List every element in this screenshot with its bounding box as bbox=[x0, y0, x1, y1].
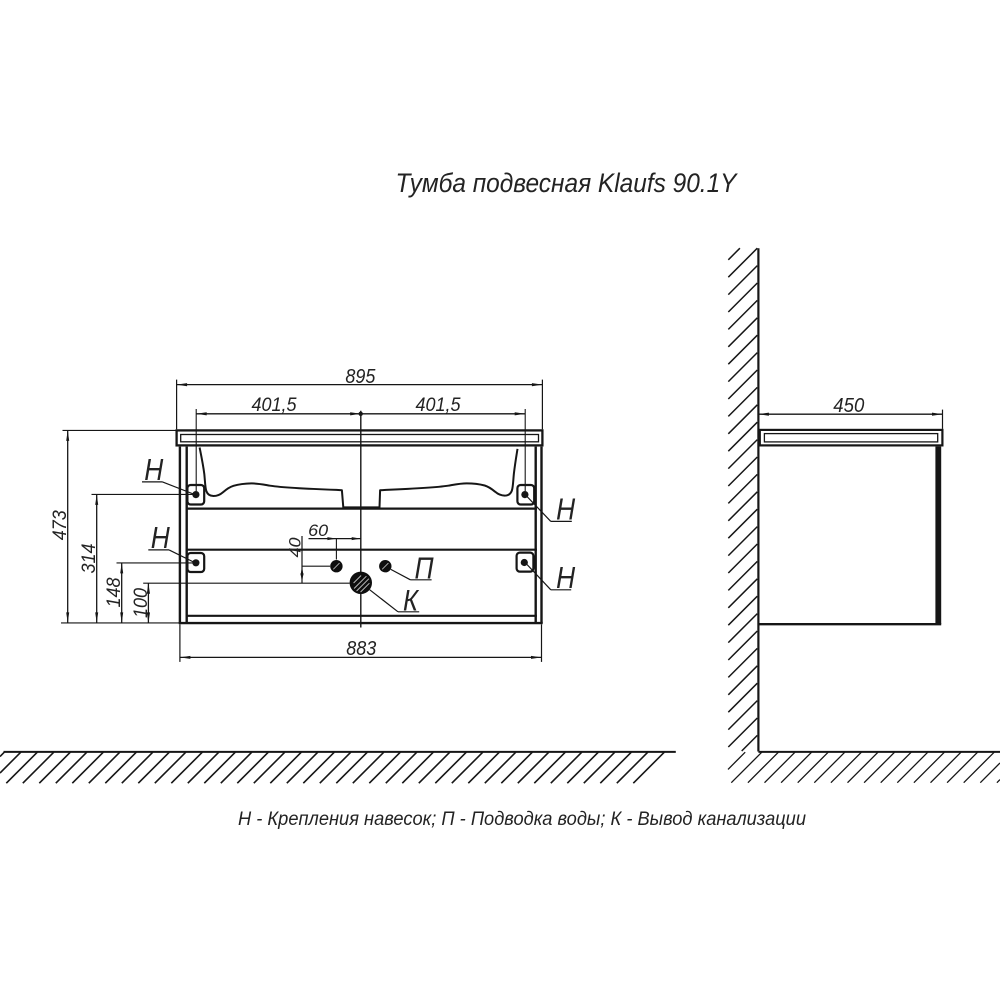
svg-text:100: 100 bbox=[131, 588, 152, 618]
svg-text:П: П bbox=[414, 552, 433, 586]
svg-text:Тумба подвесная Klaufs 90.1Y: Тумба подвесная Klaufs 90.1Y bbox=[396, 168, 739, 198]
svg-text:Н - Крепления навесок; П - Под: Н - Крепления навесок; П - Подводка воды… bbox=[238, 809, 806, 830]
svg-text:40: 40 bbox=[285, 537, 304, 558]
svg-text:60: 60 bbox=[308, 521, 329, 540]
svg-text:450: 450 bbox=[833, 395, 864, 417]
svg-text:401,5: 401,5 bbox=[416, 395, 461, 416]
svg-text:473: 473 bbox=[50, 510, 71, 540]
svg-text:883: 883 bbox=[346, 638, 376, 660]
svg-text:895: 895 bbox=[345, 366, 376, 388]
svg-text:401,5: 401,5 bbox=[252, 395, 297, 416]
svg-text:148: 148 bbox=[104, 577, 125, 607]
svg-text:314: 314 bbox=[79, 544, 100, 574]
